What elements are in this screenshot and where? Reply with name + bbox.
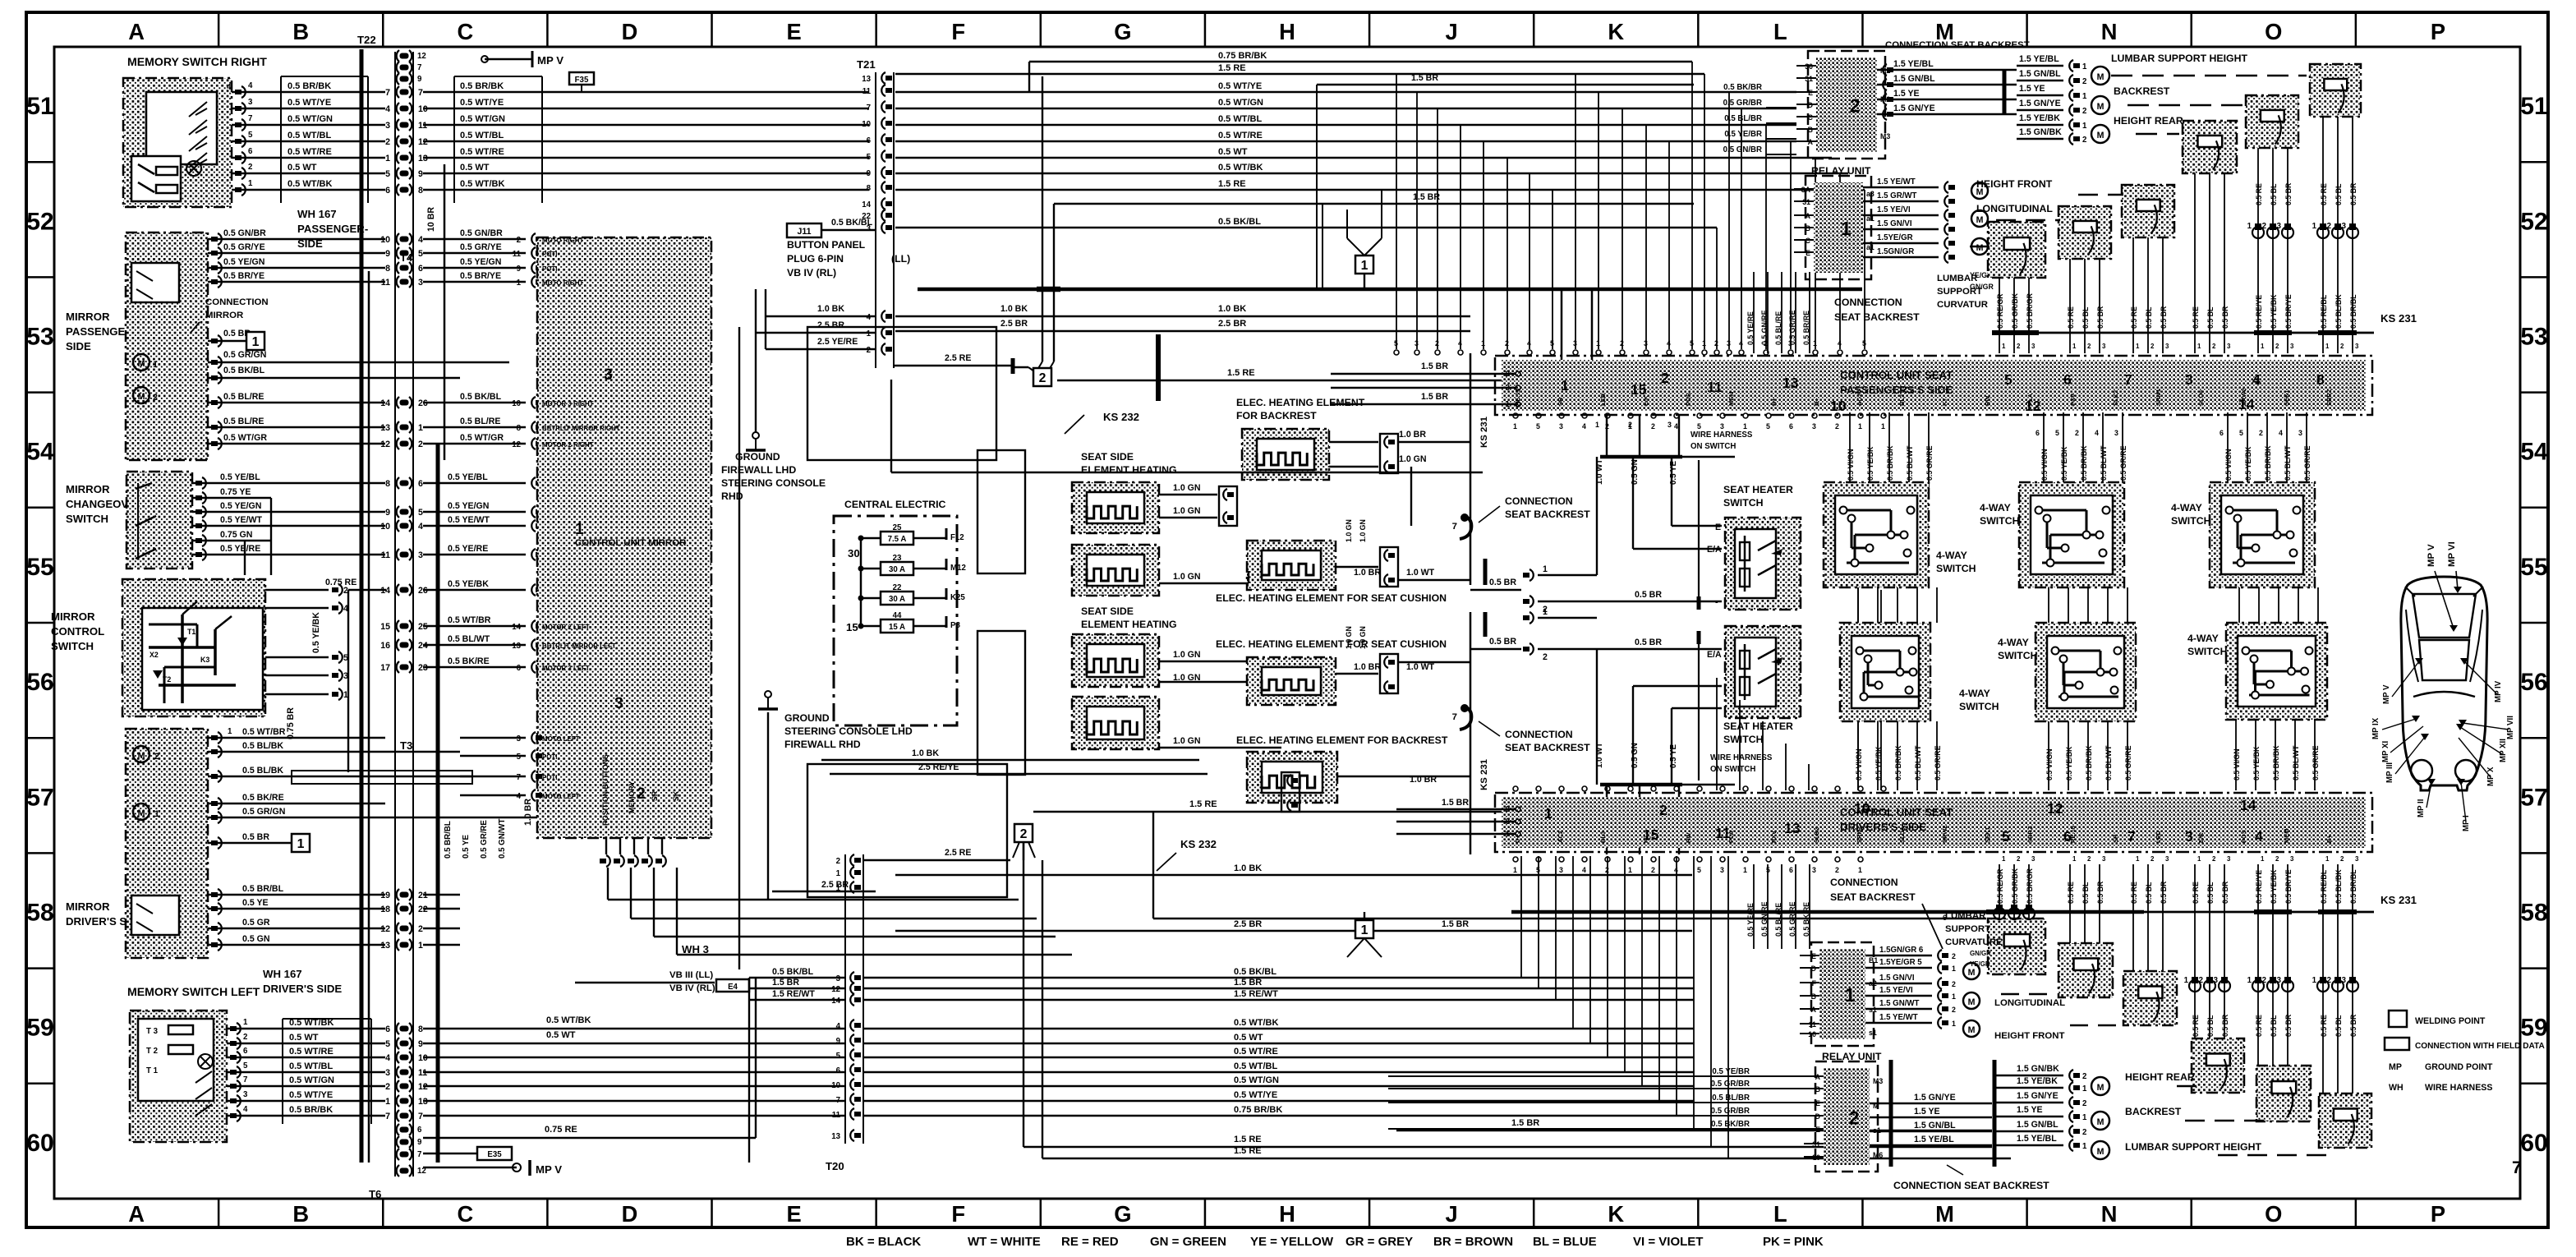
svg-text:F: F bbox=[951, 1201, 965, 1227]
svg-text:3: 3 bbox=[1559, 866, 1563, 874]
svg-text:0.5 GR/RE: 0.5 GR/RE bbox=[1934, 745, 1942, 780]
svg-text:LUMBAR SUPPORT HEIGHT: LUMBAR SUPPORT HEIGHT bbox=[2111, 53, 2247, 64]
svg-text:1: 1 bbox=[2325, 343, 2330, 350]
svg-text:1: 1 bbox=[2312, 222, 2317, 231]
svg-text:0.5 YE/GN: 0.5 YE/GN bbox=[448, 501, 489, 511]
svg-text:1: 1 bbox=[1813, 339, 1817, 348]
svg-text:3: 3 bbox=[2342, 976, 2347, 985]
svg-text:15: 15 bbox=[380, 622, 390, 632]
svg-text:2: 2 bbox=[2262, 222, 2266, 231]
svg-text:M: M bbox=[138, 359, 145, 369]
svg-text:9: 9 bbox=[418, 169, 423, 179]
svg-text:2.5 BR: 2.5 BR bbox=[1234, 919, 1262, 929]
svg-text:T1: T1 bbox=[187, 628, 195, 636]
svg-text:BACKREST: BACKREST bbox=[2125, 1106, 2182, 1117]
svg-text:14: 14 bbox=[512, 623, 521, 632]
svg-text:0.5 BL/BR: 0.5 BL/BR bbox=[1712, 1094, 1750, 1103]
svg-text:13: 13 bbox=[1784, 820, 1801, 836]
svg-text:6: 6 bbox=[385, 1024, 390, 1034]
svg-text:POTI: POTI bbox=[542, 265, 557, 273]
svg-text:1: 1 bbox=[2184, 976, 2189, 985]
svg-text:2: 2 bbox=[1952, 1006, 1956, 1014]
svg-text:2: 2 bbox=[836, 857, 840, 866]
svg-text:2: 2 bbox=[1605, 866, 1609, 874]
svg-text:6: 6 bbox=[867, 136, 872, 145]
svg-text:10: 10 bbox=[380, 235, 390, 245]
svg-text:DRIVERS'S SIDE: DRIVERS'S SIDE bbox=[1840, 821, 1926, 833]
svg-text:0.5 RE/BL: 0.5 RE/BL bbox=[2320, 869, 2328, 904]
svg-text:9: 9 bbox=[867, 169, 872, 178]
svg-text:0.5 BL/RE: 0.5 BL/RE bbox=[223, 417, 264, 426]
svg-text:WH 3: WH 3 bbox=[682, 943, 709, 955]
svg-text:2: 2 bbox=[1039, 371, 1046, 385]
svg-text:52: 52 bbox=[26, 208, 53, 235]
svg-text:1.5 GN/WT: 1.5 GN/WT bbox=[1879, 999, 1920, 1008]
svg-text:5: 5 bbox=[1536, 422, 1540, 431]
svg-text:59: 59 bbox=[2520, 1015, 2547, 1042]
svg-text:0.5 WT/BL: 0.5 WT/BL bbox=[289, 1061, 333, 1071]
svg-text:1.5 BR: 1.5 BR bbox=[1413, 192, 1440, 202]
svg-text:4: 4 bbox=[418, 235, 423, 245]
svg-text:1.5 YE/VI: 1.5 YE/VI bbox=[1877, 205, 1911, 214]
svg-text:1.5 YE: 1.5 YE bbox=[1914, 1107, 1940, 1117]
svg-text:0.5 RE/GR: 0.5 RE/GR bbox=[1996, 293, 2004, 329]
svg-text:STEERING CONSOLE LHD: STEERING CONSOLE LHD bbox=[784, 725, 913, 737]
svg-text:1: 1 bbox=[243, 1018, 248, 1027]
svg-text:8: 8 bbox=[418, 186, 423, 196]
svg-text:SWITCH: SWITCH bbox=[2187, 646, 2228, 657]
svg-text:KS 231: KS 231 bbox=[2380, 894, 2417, 906]
svg-text:(LL): (LL) bbox=[891, 253, 910, 265]
svg-text:MEM: MEM bbox=[1727, 392, 1735, 407]
svg-text:30: 30 bbox=[848, 547, 860, 559]
svg-text:SUPPORT: SUPPORT bbox=[1945, 924, 1990, 934]
svg-text:0.5 VI/GN: 0.5 VI/GN bbox=[2224, 449, 2233, 481]
svg-text:0.5 BL: 0.5 BL bbox=[2270, 183, 2278, 205]
svg-text:0.5 GN/BR: 0.5 GN/BR bbox=[460, 228, 503, 238]
svg-text:LUMBAR SUPPORT HEIGHT: LUMBAR SUPPORT HEIGHT bbox=[2125, 1141, 2261, 1153]
svg-text:11: 11 bbox=[1707, 379, 1723, 395]
svg-text:5: 5 bbox=[418, 249, 423, 259]
svg-text:2: 2 bbox=[1605, 422, 1609, 431]
svg-text:2: 2 bbox=[418, 440, 423, 449]
svg-text:0.5 BR: 0.5 BR bbox=[1635, 638, 1662, 647]
svg-text:VI = VIOLET: VI = VIOLET bbox=[1633, 1235, 1703, 1249]
svg-text:1: 1 bbox=[575, 520, 584, 538]
svg-text:0.5 RE: 0.5 RE bbox=[2192, 882, 2200, 904]
svg-text:57: 57 bbox=[26, 784, 53, 811]
svg-text:ON SWITCH: ON SWITCH bbox=[1690, 442, 1736, 451]
svg-text:0.5 YE/GN: 0.5 YE/GN bbox=[460, 257, 501, 267]
svg-text:0.5 WT/BL: 0.5 WT/BL bbox=[287, 131, 331, 140]
svg-text:BBTRLIT MIRROR LEFT: BBTRLIT MIRROR LEFT bbox=[542, 642, 616, 650]
svg-text:0.75 RE: 0.75 RE bbox=[325, 578, 356, 587]
svg-text:MP II: MP II bbox=[2417, 799, 2426, 817]
svg-text:1.5 RE: 1.5 RE bbox=[1218, 63, 1246, 73]
svg-text:0.5 YE: 0.5 YE bbox=[1669, 461, 1678, 485]
svg-text:7: 7 bbox=[2124, 371, 2132, 388]
svg-text:2: 2 bbox=[2327, 976, 2331, 985]
svg-text:5: 5 bbox=[1697, 422, 1701, 431]
svg-text:K25: K25 bbox=[950, 593, 965, 602]
svg-text:4: 4 bbox=[1674, 866, 1678, 874]
svg-text:3: 3 bbox=[1573, 339, 1577, 348]
svg-text:0.5 BL: 0.5 BL bbox=[2145, 306, 2153, 329]
svg-text:FIREWALL LHD: FIREWALL LHD bbox=[721, 464, 796, 476]
svg-text:LUMBAR: LUMBAR bbox=[1937, 274, 1977, 283]
svg-text:1.0 WT: 1.0 WT bbox=[1406, 662, 1435, 672]
svg-text:0.5 BK/BL: 0.5 BK/BL bbox=[460, 392, 502, 402]
svg-text:55: 55 bbox=[26, 554, 53, 581]
svg-text:0.5 BR: 0.5 BR bbox=[242, 832, 269, 842]
svg-text:0.5 WT/GR: 0.5 WT/GR bbox=[223, 433, 267, 443]
svg-text:0.5 WT: 0.5 WT bbox=[289, 1033, 319, 1043]
svg-text:F: F bbox=[951, 19, 965, 44]
svg-text:3: 3 bbox=[604, 366, 613, 384]
svg-text:1: 1 bbox=[1543, 607, 1548, 617]
svg-text:KS 232: KS 232 bbox=[1103, 411, 1139, 423]
svg-text:0.5 YE/RE: 0.5 YE/RE bbox=[220, 544, 260, 554]
svg-text:H: H bbox=[1279, 1201, 1295, 1227]
svg-text:0.5 YE/BK: 0.5 YE/BK bbox=[311, 612, 321, 653]
svg-text:0.5 BL/WT: 0.5 BL/WT bbox=[1906, 445, 1914, 481]
svg-text:10 BR: 10 BR bbox=[426, 207, 436, 232]
svg-text:5: 5 bbox=[1697, 866, 1701, 874]
svg-text:2: 2 bbox=[2082, 77, 2086, 86]
svg-text:3: 3 bbox=[385, 1068, 390, 1078]
svg-text:10: 10 bbox=[380, 522, 390, 532]
svg-text:B: B bbox=[292, 1201, 309, 1227]
svg-text:0.5 BR/BK: 0.5 BR/BK bbox=[2272, 745, 2280, 780]
svg-text:M: M bbox=[2097, 72, 2104, 82]
svg-text:1.0 BR: 1.0 BR bbox=[1399, 430, 1426, 440]
svg-text:0.5 BR/BL: 0.5 BR/BL bbox=[2349, 294, 2357, 329]
svg-text:SEAT BACKREST: SEAT BACKREST bbox=[1505, 742, 1590, 753]
svg-text:0.5 RE/YE: 0.5 RE/YE bbox=[2255, 870, 2263, 904]
svg-text:3: 3 bbox=[2355, 855, 2359, 863]
svg-text:2: 2 bbox=[1020, 827, 1028, 841]
svg-text:1.5 YE: 1.5 YE bbox=[2017, 1105, 2043, 1115]
svg-text:BUTTON PANEL: BUTTON PANEL bbox=[787, 239, 866, 251]
svg-text:14: 14 bbox=[2240, 797, 2256, 813]
svg-text:P: P bbox=[2431, 1201, 2445, 1227]
svg-text:0.5 BL: 0.5 BL bbox=[2206, 306, 2215, 329]
svg-text:5: 5 bbox=[2239, 429, 2243, 437]
svg-text:ELEC. HEATING ELEMENT FOR SEAT: ELEC. HEATING ELEMENT FOR SEAT CUSHION bbox=[1216, 592, 1447, 604]
svg-text:WH 167: WH 167 bbox=[263, 968, 302, 980]
svg-text:30 A: 30 A bbox=[889, 565, 905, 574]
svg-text:0.75 BR: 0.75 BR bbox=[286, 707, 296, 739]
svg-text:4: 4 bbox=[1582, 422, 1586, 431]
svg-text:J11: J11 bbox=[797, 227, 811, 237]
svg-text:0.5 BR/BK: 0.5 BR/BK bbox=[1894, 745, 1902, 780]
svg-text:STEERING CONSOLE: STEERING CONSOLE bbox=[721, 477, 826, 489]
svg-text:1.5 GN/YE: 1.5 GN/YE bbox=[1893, 104, 1935, 113]
svg-text:7: 7 bbox=[1452, 522, 1457, 532]
svg-text:AC2: AC2 bbox=[1856, 394, 1863, 406]
svg-text:1.5 GN/BK: 1.5 GN/BK bbox=[2019, 127, 2062, 137]
svg-text:0.5 BL: 0.5 BL bbox=[2334, 1015, 2343, 1037]
svg-text:BL = BLUE: BL = BLUE bbox=[1533, 1235, 1597, 1249]
svg-text:2: 2 bbox=[2087, 343, 2091, 350]
svg-text:10: 10 bbox=[1854, 800, 1870, 817]
svg-text:MP: MP bbox=[2389, 1062, 2402, 1072]
svg-text:5: 5 bbox=[867, 153, 872, 162]
svg-text:M: M bbox=[1968, 997, 1976, 1007]
svg-text:KS 231: KS 231 bbox=[2380, 312, 2417, 325]
svg-text:FOR BACKREST: FOR BACKREST bbox=[1236, 410, 1317, 421]
svg-text:1.5 YE/BK: 1.5 YE/BK bbox=[2017, 1076, 2058, 1086]
svg-text:1: 1 bbox=[836, 869, 841, 878]
svg-text:3: 3 bbox=[2031, 343, 2035, 350]
svg-text:MP X: MP X bbox=[2486, 767, 2495, 786]
svg-text:B+: B+ bbox=[2325, 835, 2333, 843]
svg-text:2: 2 bbox=[2327, 222, 2331, 231]
svg-text:E: E bbox=[786, 1201, 801, 1227]
svg-text:0.5 BL/WT: 0.5 BL/WT bbox=[2284, 445, 2292, 481]
svg-text:1: 1 bbox=[2082, 1084, 2087, 1094]
svg-text:4: 4 bbox=[2279, 429, 2283, 437]
svg-text:ELEMENT HEATING: ELEMENT HEATING bbox=[1081, 464, 1177, 476]
svg-text:1.5 BR: 1.5 BR bbox=[1442, 798, 1469, 808]
svg-text:1: 1 bbox=[2072, 855, 2077, 863]
svg-text:F35: F35 bbox=[575, 76, 589, 85]
svg-text:14: 14 bbox=[380, 586, 390, 596]
svg-text:2: 2 bbox=[1849, 1107, 1860, 1128]
svg-text:CONTROL: CONTROL bbox=[51, 625, 104, 638]
svg-text:3: 3 bbox=[2165, 343, 2169, 350]
svg-text:0.5 WT/BK: 0.5 WT/BK bbox=[460, 179, 504, 189]
svg-text:T6: T6 bbox=[369, 1188, 381, 1200]
svg-text:1.5 GN/BL: 1.5 GN/BL bbox=[1914, 1121, 1956, 1130]
svg-text:0.5 BR/BL: 0.5 BR/BL bbox=[242, 884, 284, 894]
svg-text:G: G bbox=[1114, 1201, 1131, 1227]
svg-text:4-WAY: 4-WAY bbox=[2187, 633, 2219, 644]
svg-text:SR: SR bbox=[651, 790, 659, 801]
svg-text:SRM1: SRM1 bbox=[1856, 826, 1863, 843]
svg-text:LED: LED bbox=[2155, 830, 2162, 843]
svg-text:1.0 GN: 1.0 GN bbox=[1359, 626, 1367, 649]
svg-text:4: 4 bbox=[1582, 866, 1586, 874]
svg-text:57: 57 bbox=[2520, 784, 2547, 811]
svg-text:4-WAY: 4-WAY bbox=[1959, 688, 1990, 699]
svg-text:6: 6 bbox=[1943, 914, 1947, 922]
svg-text:MP V: MP V bbox=[2382, 684, 2391, 704]
svg-text:0.5 RE/YE: 0.5 RE/YE bbox=[2255, 295, 2263, 329]
svg-text:MOTO RIGHT: MOTO RIGHT bbox=[542, 279, 583, 287]
svg-text:E35: E35 bbox=[487, 1150, 502, 1159]
svg-text:0.5 BL/BK: 0.5 BL/BK bbox=[242, 741, 283, 751]
svg-text:0.5 YE/RE: 0.5 YE/RE bbox=[1746, 311, 1755, 345]
svg-text:CONNECTION: CONNECTION bbox=[1505, 495, 1573, 507]
svg-text:MIRROR: MIRROR bbox=[66, 483, 110, 495]
svg-text:11: 11 bbox=[513, 250, 522, 259]
svg-text:0.5 YE/BK: 0.5 YE/BK bbox=[2270, 869, 2278, 904]
svg-text:0.5 WT/BL: 0.5 WT/BL bbox=[1234, 1061, 1277, 1071]
svg-text:3: 3 bbox=[1559, 422, 1563, 431]
svg-text:0.5 BK/RE: 0.5 BK/RE bbox=[1802, 902, 1810, 937]
svg-text:0.5 BK/RE: 0.5 BK/RE bbox=[448, 656, 490, 666]
svg-text:12: 12 bbox=[417, 52, 426, 61]
svg-text:PLA: PLA bbox=[2026, 393, 2034, 406]
svg-text:0.5 WT/GN: 0.5 WT/GN bbox=[289, 1075, 334, 1085]
svg-text:0.5 YE/BK: 0.5 YE/BK bbox=[1866, 446, 1874, 481]
svg-text:L: L bbox=[1773, 19, 1787, 44]
svg-text:59: 59 bbox=[26, 1015, 53, 1042]
svg-text:1.5 GR/WT: 1.5 GR/WT bbox=[1877, 191, 1917, 200]
svg-text:60: 60 bbox=[26, 1130, 53, 1157]
svg-text:SEK1: SEK1 bbox=[2283, 389, 2290, 406]
svg-text:2.5 BR: 2.5 BR bbox=[1000, 319, 1028, 329]
svg-text:0.5 BL: 0.5 BL bbox=[2206, 1015, 2215, 1037]
svg-text:1: 1 bbox=[1628, 866, 1632, 874]
svg-text:0.5 GR/GN: 0.5 GR/GN bbox=[242, 807, 285, 817]
svg-text:RW: RW bbox=[1685, 832, 1692, 843]
svg-text:0.5 GR/YE: 0.5 GR/YE bbox=[223, 242, 265, 252]
svg-text:1: 1 bbox=[2261, 343, 2265, 350]
svg-text:1: 1 bbox=[252, 335, 260, 349]
svg-text:0.5 BR/BK: 0.5 BR/BK bbox=[460, 81, 504, 91]
svg-text:4: 4 bbox=[418, 522, 423, 532]
svg-text:HEIGHT FRONT: HEIGHT FRONT bbox=[1976, 178, 2053, 190]
svg-text:13: 13 bbox=[512, 642, 521, 651]
svg-text:1: 1 bbox=[385, 1097, 390, 1107]
svg-text:0.5 BR: 0.5 BR bbox=[2284, 1014, 2293, 1037]
svg-text:6: 6 bbox=[836, 1066, 841, 1075]
svg-text:4: 4 bbox=[243, 1105, 248, 1114]
svg-text:19: 19 bbox=[380, 891, 390, 900]
svg-text:2: 2 bbox=[2150, 343, 2155, 350]
svg-text:6: 6 bbox=[385, 186, 390, 196]
svg-text:1.5 YE/BL: 1.5 YE/BL bbox=[2019, 54, 2059, 64]
svg-text:0.5 GR/RE: 0.5 GR/RE bbox=[2303, 445, 2311, 481]
svg-text:SK: SK bbox=[672, 790, 680, 801]
svg-text:FIREWALL RHD: FIREWALL RHD bbox=[784, 739, 861, 750]
svg-text:0.75 RE: 0.75 RE bbox=[545, 1125, 577, 1135]
svg-text:0.5 WT/BR: 0.5 WT/BR bbox=[448, 615, 491, 625]
svg-text:K: K bbox=[1608, 1201, 1624, 1227]
svg-text:D: D bbox=[622, 19, 638, 44]
svg-text:1: 1 bbox=[1881, 422, 1885, 431]
svg-text:5: 5 bbox=[1690, 339, 1694, 348]
svg-text:0.5 WT: 0.5 WT bbox=[1234, 1033, 1263, 1043]
svg-text:CURVATURE: CURVATURE bbox=[1945, 937, 2003, 947]
svg-text:GN = GREEN: GN = GREEN bbox=[1150, 1235, 1226, 1249]
svg-text:0.5 GR: 0.5 GR bbox=[242, 918, 270, 928]
svg-text:11: 11 bbox=[381, 278, 390, 288]
svg-text:CONTROL UNIT MIRROR: CONTROL UNIT MIRROR bbox=[575, 538, 686, 548]
svg-text:0.5 BL: 0.5 BL bbox=[2334, 183, 2343, 205]
svg-text:2: 2 bbox=[418, 924, 423, 934]
svg-text:0.5 WT/YE: 0.5 WT/YE bbox=[289, 1090, 333, 1100]
svg-text:2: 2 bbox=[2075, 429, 2079, 437]
svg-text:D: D bbox=[622, 1201, 638, 1227]
svg-text:MEM: MEM bbox=[2283, 829, 2290, 844]
svg-text:3: 3 bbox=[2290, 343, 2294, 350]
svg-text:M: M bbox=[1976, 215, 1984, 225]
svg-text:0.5 WT/RE: 0.5 WT/RE bbox=[1218, 131, 1263, 140]
svg-text:1: 1 bbox=[2312, 976, 2317, 985]
svg-text:0.5 YE/BK: 0.5 YE/BK bbox=[448, 579, 489, 589]
svg-text:CONNECTION SEAT BACKREST: CONNECTION SEAT BACKREST bbox=[1893, 1180, 2049, 1191]
svg-text:1: 1 bbox=[2247, 222, 2252, 231]
svg-text:56: 56 bbox=[26, 669, 53, 696]
svg-text:1: 1 bbox=[2261, 855, 2265, 863]
svg-text:LUMBAR: LUMBAR bbox=[1945, 911, 1985, 921]
svg-text:0.5 BR/GR: 0.5 BR/GR bbox=[2026, 292, 2034, 329]
svg-text:1.5 YE/VI: 1.5 YE/VI bbox=[1879, 986, 1913, 995]
svg-text:CENTRAL ELECTRIC: CENTRAL ELECTRIC bbox=[844, 499, 946, 510]
svg-text:56: 56 bbox=[2520, 669, 2547, 696]
svg-text:0.5 RE: 0.5 RE bbox=[2255, 1015, 2263, 1037]
svg-text:16: 16 bbox=[380, 641, 390, 651]
svg-text:2: 2 bbox=[1651, 422, 1655, 431]
svg-text:0.5 YE/BL: 0.5 YE/BL bbox=[220, 472, 260, 482]
svg-text:0.5 BL: 0.5 BL bbox=[2081, 306, 2090, 329]
svg-text:0.5 BR/RE: 0.5 BR/RE bbox=[1802, 311, 1810, 345]
svg-text:0.5 GR/BK: 0.5 GR/BK bbox=[2011, 868, 2019, 904]
svg-text:1: 1 bbox=[2072, 343, 2077, 350]
svg-text:0.5 WT/GN: 0.5 WT/GN bbox=[460, 114, 505, 124]
svg-text:0.5 BR/YE: 0.5 BR/YE bbox=[2284, 294, 2293, 329]
svg-text:MP V: MP V bbox=[2426, 544, 2436, 567]
svg-text:M: M bbox=[1976, 243, 1984, 253]
svg-text:7: 7 bbox=[517, 773, 521, 782]
svg-text:7: 7 bbox=[2512, 1158, 2522, 1177]
svg-text:9: 9 bbox=[385, 249, 390, 259]
svg-text:3: 3 bbox=[418, 278, 423, 288]
svg-text:WIRE HARNESS: WIRE HARNESS bbox=[1690, 431, 1753, 440]
svg-text:E/K: E/K bbox=[1642, 395, 1649, 406]
svg-text:0.5 RE: 0.5 RE bbox=[2255, 183, 2263, 205]
svg-text:GROUND POINT: GROUND POINT bbox=[2425, 1062, 2493, 1072]
svg-text:0.5 BL/WT: 0.5 BL/WT bbox=[1914, 745, 1922, 780]
svg-text:B: B bbox=[292, 19, 309, 44]
svg-text:7: 7 bbox=[417, 63, 421, 72]
svg-text:M: M bbox=[2097, 1083, 2104, 1093]
svg-text:1.0 BK: 1.0 BK bbox=[1000, 304, 1028, 314]
svg-text:CURVATUR: CURVATUR bbox=[1937, 300, 1988, 310]
svg-text:2: 2 bbox=[1850, 95, 1861, 117]
svg-text:1: 1 bbox=[1513, 866, 1517, 874]
svg-text:1: 1 bbox=[1858, 422, 1862, 431]
svg-text:0.5 RE: 0.5 RE bbox=[2320, 1015, 2328, 1037]
svg-text:1: 1 bbox=[2002, 855, 2006, 863]
svg-text:0.5 BR: 0.5 BR bbox=[1635, 590, 1662, 600]
svg-text:5: 5 bbox=[418, 508, 423, 518]
svg-text:0.5 WT: 0.5 WT bbox=[287, 163, 317, 173]
svg-text:0.5 VI/GN: 0.5 VI/GN bbox=[2233, 748, 2241, 780]
svg-text:30 A: 30 A bbox=[889, 595, 905, 604]
svg-text:DRIVER'S SIDE: DRIVER'S SIDE bbox=[263, 983, 342, 995]
svg-text:2.5 RE: 2.5 RE bbox=[945, 353, 971, 363]
svg-text:2: 2 bbox=[1835, 422, 1839, 431]
svg-text:4: 4 bbox=[1838, 339, 1842, 348]
svg-text:13: 13 bbox=[862, 75, 871, 84]
svg-text:0.5 BL/RE: 0.5 BL/RE bbox=[1774, 903, 1782, 937]
svg-text:1: 1 bbox=[2082, 62, 2087, 71]
svg-text:1.5 GN/YE: 1.5 GN/YE bbox=[2019, 99, 2061, 108]
svg-text:A: A bbox=[128, 19, 145, 44]
svg-text:1.5 BR: 1.5 BR bbox=[1421, 361, 1448, 371]
svg-text:5: 5 bbox=[243, 1061, 248, 1071]
svg-text:54: 54 bbox=[2520, 439, 2548, 466]
svg-text:3: 3 bbox=[2185, 828, 2193, 845]
svg-text:0.5 GR/GN: 0.5 GR/GN bbox=[223, 350, 266, 360]
svg-text:1: 1 bbox=[2082, 1113, 2087, 1122]
svg-text:1.5 GN/YE: 1.5 GN/YE bbox=[2017, 1091, 2058, 1101]
svg-text:CONNECTION SEAT BACKREST: CONNECTION SEAT BACKREST bbox=[1885, 40, 2030, 50]
